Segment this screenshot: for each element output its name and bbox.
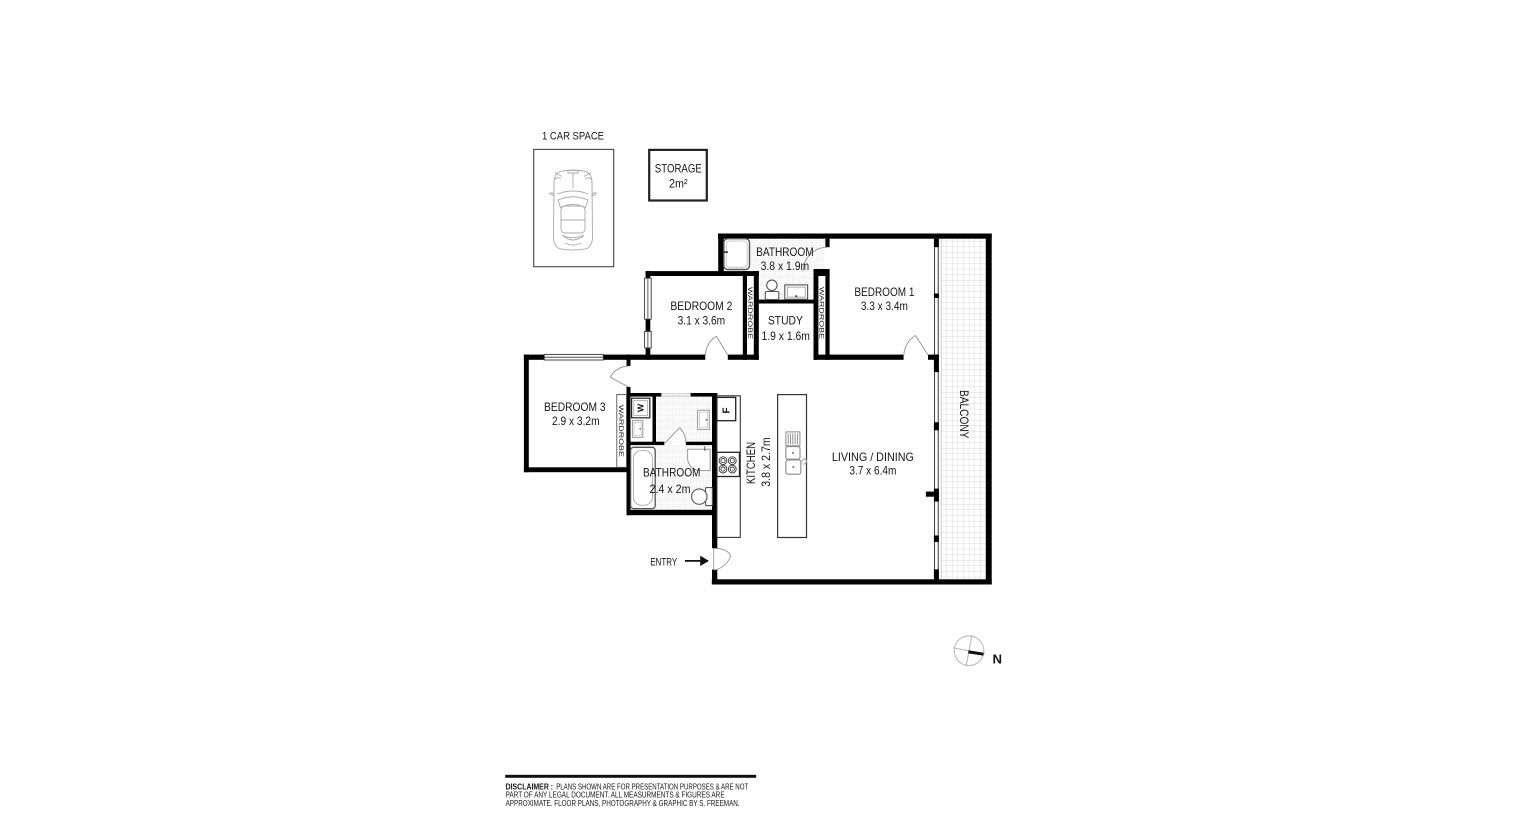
svg-text:3.8 x 1.9m: 3.8 x 1.9m (761, 260, 810, 273)
svg-text:ENTRY: ENTRY (650, 556, 677, 568)
svg-text:3.3 x 3.4m: 3.3 x 3.4m (861, 300, 908, 313)
svg-text:LIVING / DINING: LIVING / DINING (832, 451, 914, 464)
svg-text:W: W (636, 403, 646, 412)
svg-text:KITCHEN: KITCHEN (745, 442, 758, 484)
svg-text:N: N (993, 651, 1003, 666)
svg-text:2.9 x 3.2m: 2.9 x 3.2m (552, 415, 600, 428)
svg-text:F: F (722, 407, 733, 413)
svg-text:3.7 x 6.4m: 3.7 x 6.4m (849, 464, 896, 477)
svg-text:WARDROBE: WARDROBE (817, 287, 824, 340)
svg-text:1 CAR SPACE: 1 CAR SPACE (542, 131, 604, 143)
svg-text:2m²: 2m² (669, 177, 688, 191)
svg-text:BEDROOM 3: BEDROOM 3 (544, 401, 606, 414)
svg-text:BATHROOM: BATHROOM (643, 466, 701, 479)
svg-text:WARDROBE: WARDROBE (617, 405, 624, 458)
svg-text:BEDROOM 2: BEDROOM 2 (670, 300, 732, 313)
svg-text:3.1 x 3.6m: 3.1 x 3.6m (678, 315, 726, 328)
svg-text:WARDROBE: WARDROBE (746, 287, 753, 340)
svg-text:STUDY: STUDY (768, 315, 803, 328)
svg-text:BALCONY: BALCONY (957, 390, 970, 439)
svg-text:BATHROOM: BATHROOM (756, 246, 814, 259)
svg-text:3.8 x 2.7m: 3.8 x 2.7m (760, 437, 773, 487)
svg-text:BEDROOM 1: BEDROOM 1 (854, 286, 914, 299)
svg-text:1.9 x 1.6m: 1.9 x 1.6m (761, 330, 810, 343)
svg-text:2.4 x 2m: 2.4 x 2m (650, 483, 691, 496)
svg-text:STORAGE: STORAGE (655, 162, 702, 176)
svg-text:APPROXIMATE. FLOOR PLANS, PHOT: APPROXIMATE. FLOOR PLANS, PHOTOGRAPHY & … (506, 798, 740, 808)
